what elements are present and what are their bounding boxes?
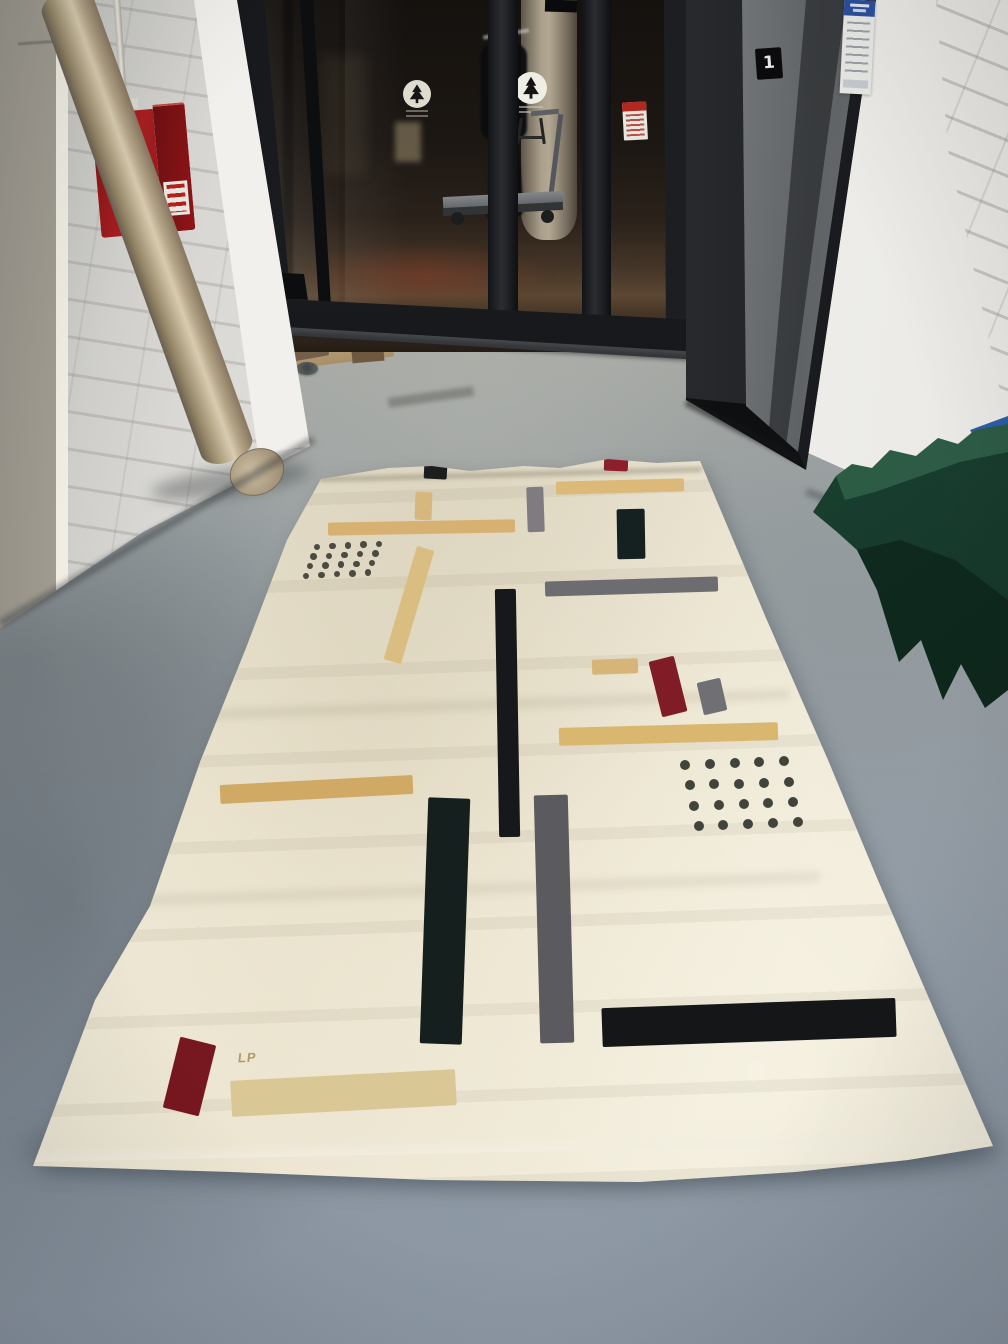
warehouse-hallway-photo: FIRE EXTINGUISHER 1 (0, 0, 1008, 1344)
dot-grid-right-dot (779, 756, 789, 766)
bar-black-bottom-right (601, 998, 896, 1047)
bar-tan-right-long (559, 722, 778, 746)
dot-grid-left-dot (349, 570, 356, 577)
dot-grid-left-dot (369, 560, 376, 567)
dot-grid-left-dot (303, 573, 310, 580)
bar-teal-bottom-left (420, 797, 471, 1044)
dot-grid-right-dot (784, 777, 794, 787)
dot-grid-right-dot (768, 818, 778, 828)
bar-tan-left-vertical (384, 546, 435, 664)
dot-grid-right-dot (694, 821, 704, 831)
dot-grid-right-dot (759, 778, 769, 788)
bar-gray-right-long (545, 576, 718, 596)
bar-tan-pale-bottom (230, 1069, 457, 1117)
dot-grid-left-dot (322, 562, 329, 569)
dot-grid-left-dot (376, 541, 383, 548)
dot-grid-right-dot (793, 817, 803, 827)
bar-black-top (424, 463, 448, 479)
bar-red-right (648, 656, 687, 718)
dot-grid-left-dot (345, 542, 352, 549)
dot-grid-left-dot (372, 550, 379, 557)
dot-grid-left-dot (357, 551, 364, 558)
bar-tan-mid-left (220, 775, 414, 804)
bar-tan-top-left-long (328, 519, 515, 535)
bar-tan-top-right (556, 478, 684, 494)
dot-grid-left-dot (353, 561, 360, 568)
bar-tan-right-small (592, 658, 638, 675)
dot-grid-right-dot (763, 798, 773, 808)
dot-grid-right-dot (788, 797, 798, 807)
bar-gray-right-small (697, 678, 728, 716)
bar-red-top (604, 457, 628, 472)
dot-grid-left-dot (329, 543, 336, 550)
dot-grid-right-dot (718, 820, 728, 830)
dot-grid-left-dot (338, 561, 345, 568)
bar-teal-top-right (617, 509, 646, 559)
rug-wrapper: LP (0, 0, 1008, 1344)
dot-grid-right-dot (705, 759, 715, 769)
dot-grid-right-dot (714, 800, 724, 810)
dot-grid-right-dot (739, 799, 749, 809)
bar-tan-top-left-small (415, 492, 433, 521)
cream-geometric-area-rug: LP (0, 0, 1008, 1344)
bar-gray-bottom-center (534, 795, 574, 1044)
dot-grid-left-dot (326, 553, 333, 560)
dot-grid-right-dot (743, 819, 753, 829)
dot-grid-right-dot (754, 757, 764, 767)
dot-grid-right-dot (709, 779, 719, 789)
dot-grid-right-dot (734, 779, 744, 789)
dot-grid-left-dot (341, 552, 348, 559)
dot-grid-left-dot (310, 553, 317, 560)
dot-grid-right-dot (730, 758, 740, 768)
bar-black-center-long (495, 589, 520, 837)
bar-gray-top-center (526, 487, 545, 533)
dot-grid-right-dot (680, 760, 690, 770)
dot-grid-left-dot (365, 569, 372, 576)
dot-grid-left-dot (360, 541, 367, 548)
rug-designer-monogram: LP (237, 1050, 257, 1066)
dot-grid-right-dot (685, 780, 695, 790)
dot-grid-left-dot (334, 571, 341, 578)
dot-grid-left-dot (314, 544, 321, 551)
dot-grid-left-dot (318, 572, 325, 579)
dot-grid-right-dot (689, 801, 699, 811)
dot-grid-left-dot (307, 563, 314, 570)
bar-red-bottom-left (163, 1037, 217, 1117)
